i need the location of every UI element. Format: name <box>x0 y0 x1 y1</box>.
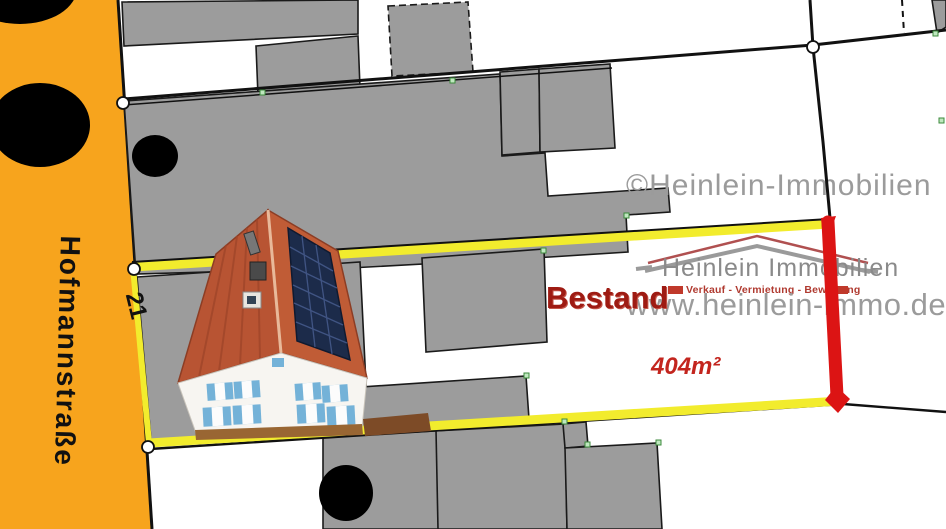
red-marker-arrow <box>825 386 850 413</box>
site-plan: Hofmannstraße 21 ©Heinlein-Immobilien He… <box>0 0 946 529</box>
marker-overlay <box>0 0 946 529</box>
boundary-node <box>807 41 819 53</box>
red-marker-line <box>828 222 837 396</box>
boundary-line-vertical <box>810 0 830 218</box>
